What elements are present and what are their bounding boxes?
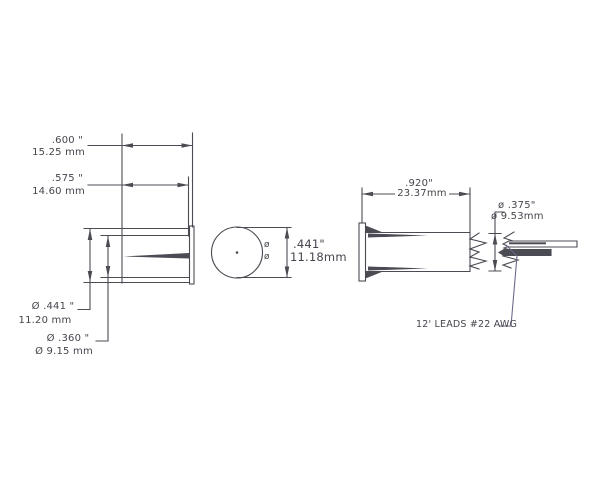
arrow-overall-left [122,143,133,148]
flange-taper-bottom [366,272,384,279]
right-flange-outline [359,223,366,281]
arrow-frontdia-up [285,228,290,239]
retention-rib-bottom [368,267,428,271]
dim-body-diameter-mm: Ø 9.15 mm [28,346,100,358]
arrow-reardia-up [493,234,498,245]
front-view [212,227,292,278]
center-point [236,251,239,254]
dim-overall-length-inches: .600 " [15,135,83,147]
dim-line-flange-diameter [78,229,90,310]
dim-front-diameter-inches: .441" [293,238,325,250]
dim-front-diameter-mm: 11.18mm [290,251,347,263]
dimensional-drawing: .600 " 15.25 mm .575 " 14.60 mm Ø .441 "… [0,0,600,491]
arrow-housing-left [362,192,373,197]
side-view-right [359,188,577,326]
arrow-bodydia-down [106,266,111,277]
break-symbol-body-top [470,233,486,252]
flange-outline [190,226,195,284]
leads-annotation: 12' LEADS #22 AWG [416,319,517,331]
arrow-bodylen-left [122,183,133,188]
flange-taper-top [366,226,384,233]
internal-switch-wedge [123,253,189,259]
dim-rear-diameter-mm: ø 9.53mm [491,211,544,223]
arrow-overall-right [182,143,193,148]
dim-body-length-inches: .575 " [15,173,83,185]
arrow-bodylen-right [178,183,189,188]
retention-rib-top [368,234,428,238]
front-diameter-symbol-bottom: ø [264,251,270,263]
dim-line-body-diameter [96,236,108,341]
lead-wire-bottom [499,250,551,256]
dim-overall-length-mm: 15.25 mm [15,147,85,159]
dim-flange-diameter-mm: 11.20 mm [10,315,80,327]
arrow-flangedia-up [88,229,93,240]
dim-body-diameter-inches: Ø .360 " [32,333,104,345]
arrow-flangedia-down [88,271,93,282]
side-view-left [78,133,194,341]
arrow-bodydia-up [106,236,111,247]
arrow-reardia-down [493,260,498,271]
dim-body-length-mm: 14.60 mm [15,186,85,198]
break-symbol-body-bottom [470,252,486,269]
arrow-housing-right [459,192,470,197]
lead-wire-top-core [509,242,546,244]
arrow-frontdia-down [285,267,290,278]
dim-flange-diameter-inches: Ø .441 " [18,301,88,313]
dim-housing-length-mm: 23.37mm [395,188,449,200]
front-diameter-symbol-top: ø [264,239,270,251]
